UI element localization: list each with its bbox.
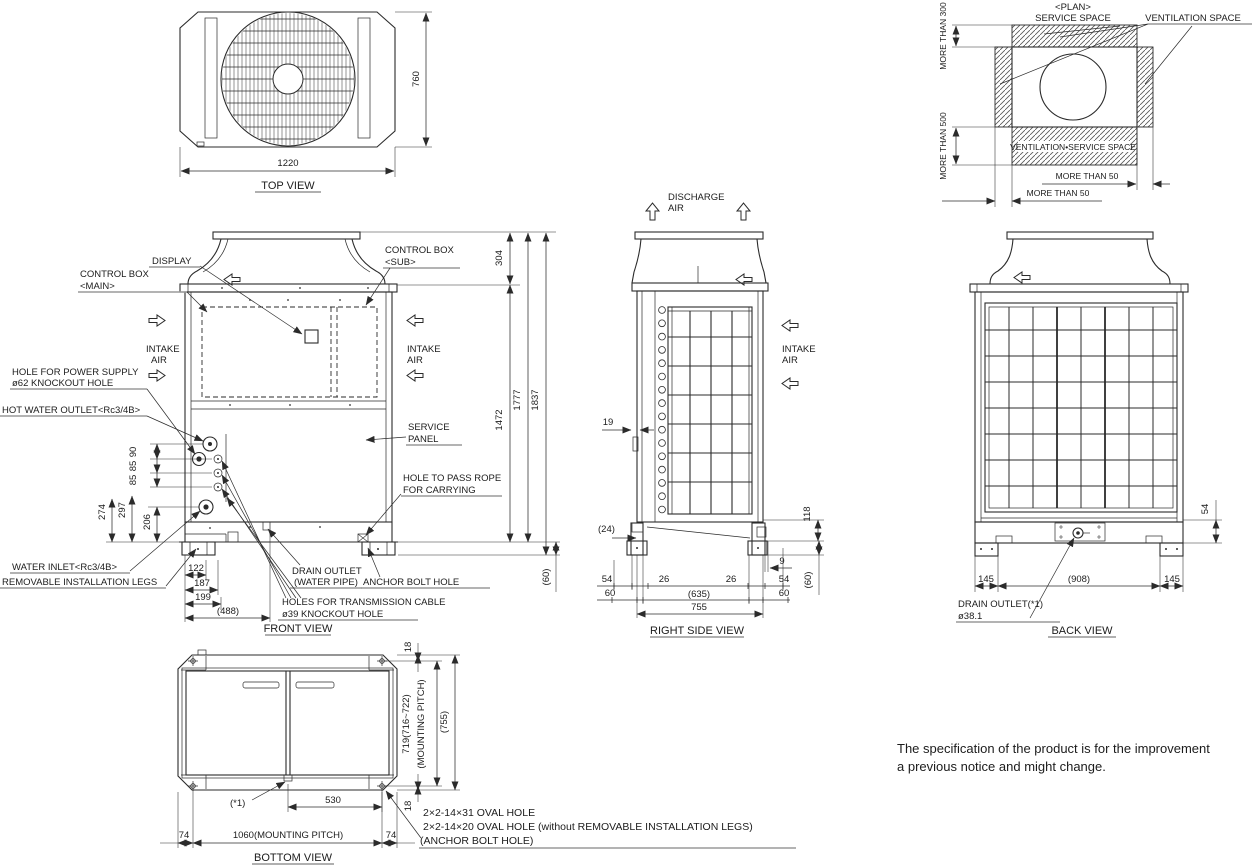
front-intake-right-1: INTAKE: [407, 344, 441, 355]
top-view: 760 1220 TOP VIEW: [180, 12, 432, 192]
plan-ventilation-label: VENTILATION SPACE: [1145, 13, 1241, 24]
discharge-arrow-icon: [646, 203, 659, 220]
front-intake-left-1: INTAKE: [146, 344, 180, 355]
shroud-arrow-icon: [1014, 272, 1030, 283]
side-shroud-plate: [635, 232, 763, 239]
plan-service-space: <PLAN> SERVICE SPACE VENTILATION SPACE M…: [938, 2, 1252, 207]
discharge-air-label-2: AIR: [668, 203, 684, 214]
dim-1060: 1060(MOUNTING PITCH): [233, 830, 343, 841]
dim-24: (24): [598, 524, 615, 535]
transmission-label-1: HOLES FOR TRANSMISSION CABLE: [282, 597, 445, 608]
service-panel-label-1: SERVICE: [408, 422, 450, 433]
top-view-tab: [197, 142, 204, 146]
dim-297: 297: [117, 502, 128, 518]
power-supply-label-1: HOLE FOR POWER SUPPLY: [12, 367, 139, 378]
plan-more50-b: MORE THAN 50: [1027, 188, 1090, 198]
back-grille-grid: [985, 307, 1177, 508]
top-view-right-plate: [358, 18, 370, 138]
control-box-main-label-1: CONTROL BOX: [80, 269, 149, 280]
dim-19: 19: [603, 417, 614, 428]
drain-outlet-front: [263, 522, 270, 530]
dim-122: 122: [188, 563, 204, 574]
bottom-panels: [186, 671, 389, 775]
display-label: DISPLAY: [152, 256, 192, 267]
rope-hole-label-1: HOLE TO PASS ROPE: [403, 473, 501, 484]
disclaimer-line-2: a previous notice and might change.: [897, 759, 1106, 774]
side-right-leg: [752, 523, 765, 555]
dim-pitch-1: 719(716~722): [401, 694, 412, 753]
dim-908: (908): [1068, 574, 1090, 585]
dim-60l: 60: [605, 588, 616, 599]
back-left-leg: [975, 543, 998, 556]
dim-60v-side: (60): [803, 572, 814, 589]
side-left-leg: [631, 523, 643, 555]
front-view-title: FRONT VIEW: [264, 623, 333, 635]
plan-subtitle: SERVICE SPACE: [1035, 13, 1111, 24]
front-shroud-plate: [213, 232, 360, 239]
plan-more50-a: MORE THAN 50: [1056, 171, 1119, 181]
front-intake-left-2: AIR: [151, 355, 167, 366]
dim-9: 9: [779, 556, 784, 567]
back-right-leg: [1160, 543, 1183, 556]
dim-26b: 26: [726, 574, 737, 585]
removable-legs-label: REMOVABLE INSTALLATION LEGS: [2, 577, 157, 588]
dim-18-bottom: 18: [403, 801, 414, 812]
front-cabinet: [185, 292, 392, 522]
right-side-view: DISCHARGE AIR 19 (24) 118 9 (60) 54 26 2…: [597, 192, 824, 637]
water-inlet-label: WATER INLET<Rc3/4B>: [12, 562, 118, 573]
control-box-main-outline: [202, 307, 377, 397]
discharge-air-label-1: DISCHARGE: [668, 192, 724, 203]
intake-arrow-icon: [782, 320, 798, 331]
top-view-title: TOP VIEW: [261, 180, 315, 192]
dim-304: 304: [494, 250, 505, 266]
side-top-plate: [632, 283, 768, 291]
dim-755-bottom: (755): [439, 711, 450, 733]
bottom-outline: [178, 655, 397, 790]
top-view-height-dim: 760: [411, 71, 422, 87]
dim-145l: 145: [978, 574, 994, 585]
rope-hole-label-2: FOR CARRYING: [403, 485, 476, 496]
hot-water-outlet-label: HOT WATER OUTLET<Rc3/4B>: [2, 405, 141, 416]
front-intake-right-2: AIR: [407, 355, 423, 366]
dim-60r: 60: [779, 588, 790, 599]
drain-outlet-back-label-1: DRAIN OUTLET(*1): [958, 599, 1043, 610]
front-top-plate: [180, 284, 397, 292]
intake-arrow-icon: [782, 378, 798, 389]
dim-54-back: 54: [1200, 504, 1211, 515]
dim-118: 118: [802, 506, 813, 521]
dim-85b: 85: [128, 475, 139, 486]
dim-635: (635): [688, 589, 710, 600]
oval-hole-note-3: (ANCHOR BOLT HOLE): [420, 835, 533, 847]
control-box-main-label-2: <MAIN>: [80, 281, 115, 292]
back-top-plate: [970, 284, 1188, 292]
drawing-sheet: 760 1220 TOP VIEW <PLAN> SERVICE SPACE V…: [0, 0, 1258, 867]
plan-title: <PLAN>: [1055, 2, 1091, 13]
intake-arrow-icon: [407, 315, 423, 326]
side-intake-label-1: INTAKE: [782, 344, 816, 355]
dim-85a: 85: [128, 461, 139, 472]
dim-1837: 1837: [530, 389, 541, 410]
intake-arrow-icon: [149, 370, 165, 381]
intake-arrow-icon: [149, 315, 165, 326]
bottom-view-title: BOTTOM VIEW: [254, 852, 333, 864]
ventilation-space-left: [995, 47, 1012, 127]
dim-274: 274: [97, 504, 108, 520]
dim-26a: 26: [659, 574, 670, 585]
footer-note: The specification of the product is for …: [897, 741, 1210, 774]
panel-handle: [296, 682, 334, 688]
transmission-label-2: ø39 KNOCKOUT HOLE: [282, 609, 383, 620]
star-note: (*1): [230, 798, 245, 809]
panel-handle: [243, 682, 279, 688]
display-unit: [305, 330, 318, 343]
back-cabinet: [975, 292, 1183, 522]
fan-hub: [273, 64, 303, 94]
dim-755: 755: [691, 602, 707, 613]
dim-pitch-2: (MOUNTING PITCH): [416, 679, 427, 768]
plan-strip-label: VENTILATION•SERVICE SPACE: [1010, 142, 1136, 152]
plan-unit-outline: [1012, 47, 1137, 127]
dim-1777: 1777: [512, 389, 523, 410]
anchor-bolt-label: ANCHOR BOLT HOLE: [363, 577, 459, 588]
drain-outlet-back-label-2: ø38.1: [958, 611, 982, 622]
intake-arrow-icon: [407, 370, 423, 381]
control-box-sub-label-1: CONTROL BOX: [385, 245, 454, 256]
right-side-view-title: RIGHT SIDE VIEW: [650, 625, 745, 637]
side-intake-label-2: AIR: [782, 355, 798, 366]
oval-hole-note-2: 2×2-14×20 OVAL HOLE (without REMOVABLE I…: [423, 821, 753, 833]
plan-more300: MORE THAN 300: [938, 2, 948, 70]
top-view-width-dim: 1220: [277, 158, 298, 169]
front-view: 90 85 85 274 297 206 122 187 199 (488) 3…: [0, 232, 560, 635]
discharge-arrow-icon: [737, 203, 750, 220]
oval-hole-note-1: 2×2-14×31 OVAL HOLE: [423, 807, 535, 819]
back-view: 54 145 (908) 145 DRAIN OUTLET(*1) ø38.1 …: [956, 232, 1222, 637]
dim-60-front: (60): [541, 569, 552, 586]
ventilation-space-right: [1137, 47, 1153, 127]
coil-fin-circles: [659, 307, 666, 513]
dim-18-top: 18: [403, 642, 414, 653]
dim-54r: 54: [779, 574, 790, 585]
side-grille: [668, 307, 752, 514]
disclaimer-line-1: The specification of the product is for …: [897, 741, 1210, 756]
dim-530: 530: [325, 795, 341, 806]
dim-90: 90: [128, 447, 139, 458]
dim-145r: 145: [1164, 574, 1180, 585]
dim-199: 199: [195, 592, 211, 603]
side-cabinet: [637, 291, 763, 522]
service-panel-label-2: PANEL: [408, 434, 438, 445]
back-view-title: BACK VIEW: [1051, 625, 1113, 637]
plan-more500: MORE THAN 500: [938, 112, 948, 180]
bottom-view: 18 719(716~722) (MOUNTING PITCH) (755) 1…: [160, 642, 796, 864]
dim-206: 206: [142, 514, 153, 530]
top-view-left-plate: [205, 18, 217, 138]
drain-plate: [1055, 523, 1105, 541]
dim-54l: 54: [602, 574, 613, 585]
dim-1472: 1472: [494, 409, 505, 430]
dim-187: 187: [194, 578, 210, 589]
drawing-canvas: 760 1220 TOP VIEW <PLAN> SERVICE SPACE V…: [0, 0, 1258, 867]
back-shroud-plate: [1007, 232, 1153, 239]
control-box-sub-label-2: <SUB>: [385, 257, 416, 268]
drain-outlet-label-2: (WATER PIPE): [294, 577, 358, 588]
drain-outlet-label-1: DRAIN OUTLET: [292, 566, 362, 577]
power-supply-label-2: ø62 KNOCKOUT HOLE: [12, 378, 113, 389]
dim-488: (488): [217, 606, 239, 617]
dim-74r: 74: [386, 830, 397, 841]
dim-74l: 74: [179, 830, 190, 841]
